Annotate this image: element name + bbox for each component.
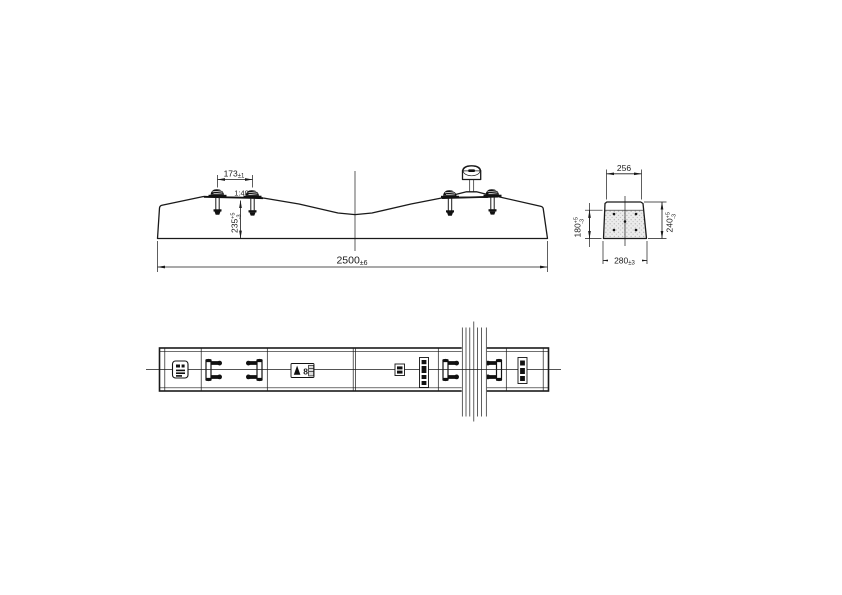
mold-digit: 8 — [303, 367, 308, 377]
rail-plan-view — [462, 322, 487, 422]
dim-section-top-width: 256 — [607, 163, 642, 200]
dim-overall-length: 2500±6 — [158, 241, 548, 272]
position-stamp-a8: 8 — [291, 364, 314, 378]
mold-date-stamp — [173, 361, 189, 378]
rail-clip-right-inner — [484, 189, 502, 214]
seat-slope-label: 1:40 — [234, 188, 249, 197]
dim-text-240: 240+5-3 — [665, 212, 678, 232]
type-stamp-right — [518, 358, 527, 384]
dim-text-2500: 2500±6 — [336, 255, 367, 268]
dim-rail-clip-spacing: 173±1 — [218, 168, 253, 187]
small-stamp — [395, 364, 405, 376]
dim-text-173: 173±1 — [224, 168, 245, 179]
plan-view: 8 — [146, 322, 561, 422]
dim-section-side-height: 180+5-3 — [573, 203, 603, 247]
rail-profile — [456, 166, 488, 198]
dim-text-180: 180+5-3 — [573, 217, 586, 237]
rail-clip-left-outer — [209, 189, 227, 214]
cross-section-view: 256 280±3 180+5-3 240+5-3 — [573, 163, 678, 267]
dim-rail-seat-height: 235+5-3 — [230, 201, 243, 239]
dim-section-total-height: 240+5-3 — [644, 202, 677, 239]
elevation-view: 173±1 1:40 235+5-3 2500±6 — [158, 166, 548, 272]
drawing-sheet: 173±1 1:40 235+5-3 2500±6 — [0, 0, 842, 595]
sleeper-technical-drawing: 173±1 1:40 235+5-3 2500±6 — [0, 0, 842, 595]
type-stamp-left — [420, 358, 429, 388]
dim-text-256: 256 — [617, 163, 631, 173]
